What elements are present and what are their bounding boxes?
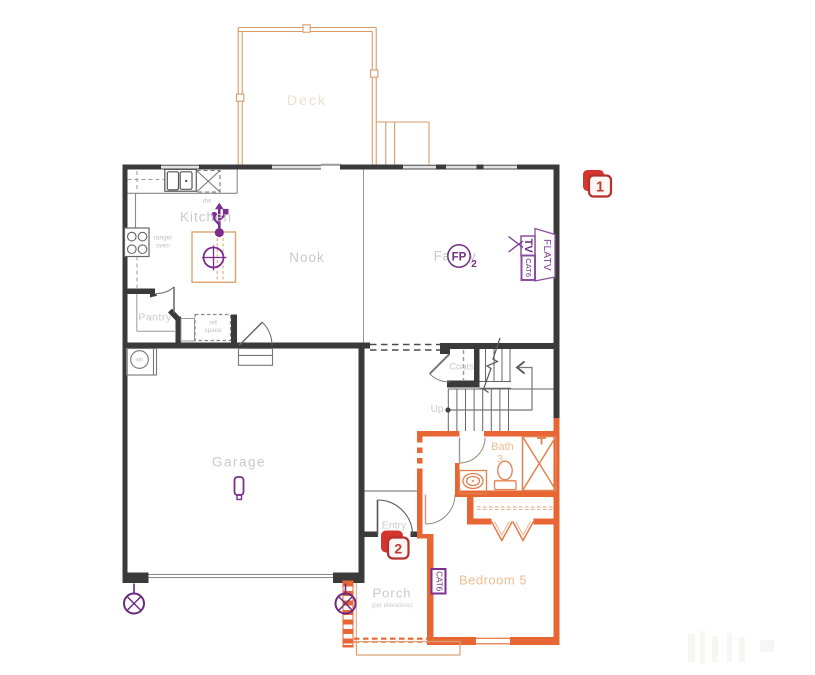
svg-text:dw: dw [203,198,212,205]
svg-text:Porch: Porch [373,586,412,601]
svg-text:TV: TV [522,239,534,254]
svg-text:ref: ref [209,320,217,327]
svg-text:Kitchen: Kitchen [180,210,232,225]
svg-text:Bath: Bath [491,441,514,453]
svg-text:(per elevations): (per elevations) [371,603,412,609]
svg-text:Garage: Garage [212,455,266,470]
svg-text:Coats: Coats [449,362,474,373]
svg-text:CAT6: CAT6 [434,571,443,591]
svg-text:2: 2 [394,541,402,557]
svg-text:Pantry: Pantry [138,312,172,324]
svg-text:1: 1 [596,180,604,196]
svg-text:2: 2 [471,259,477,270]
svg-text:space: space [204,327,222,334]
svg-text:Entry: Entry [382,520,407,532]
svg-text:wh: wh [135,358,144,364]
svg-text:Nook: Nook [289,250,325,265]
svg-text:FLATV: FLATV [541,239,552,271]
svg-text:Deck: Deck [287,92,327,108]
svg-text:Up: Up [431,404,444,415]
svg-text:CAT6: CAT6 [524,258,533,277]
svg-text:3: 3 [497,454,503,466]
svg-text:range/: range/ [154,235,173,242]
svg-text:Bedroom 5: Bedroom 5 [459,573,527,588]
svg-text:oven: oven [156,243,170,250]
svg-text:FP: FP [452,252,467,264]
